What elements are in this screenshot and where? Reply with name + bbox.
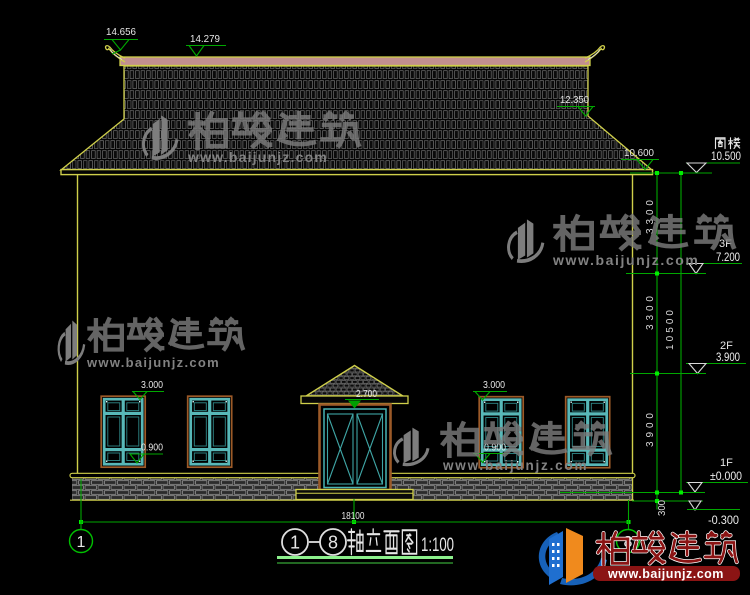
svg-text:3.900: 3.900 xyxy=(716,352,740,364)
svg-text:www.baijunjz.com: www.baijunjz.com xyxy=(187,149,328,165)
svg-text:1: 1 xyxy=(77,534,86,551)
svg-text:1:100: 1:100 xyxy=(421,535,454,556)
svg-text:300: 300 xyxy=(657,500,668,516)
svg-text:-0.300: -0.300 xyxy=(708,515,739,527)
svg-text:www.baijunjz.com: www.baijunjz.com xyxy=(442,458,588,473)
svg-text:7.200: 7.200 xyxy=(716,252,740,264)
svg-text:14.656: 14.656 xyxy=(106,26,136,38)
svg-text:10.500: 10.500 xyxy=(711,151,741,163)
svg-text:3.000: 3.000 xyxy=(483,379,505,391)
svg-text:0.900: 0.900 xyxy=(141,442,163,454)
svg-text:www.baijunjz.com: www.baijunjz.com xyxy=(552,252,699,268)
svg-text:3.000: 3.000 xyxy=(141,379,163,391)
svg-text:www.baijunjz.com: www.baijunjz.com xyxy=(607,567,724,581)
svg-text:2.700: 2.700 xyxy=(356,388,377,400)
svg-text:1: 1 xyxy=(290,533,300,553)
svg-text:2F: 2F xyxy=(720,340,733,352)
svg-text:14.279: 14.279 xyxy=(190,33,220,45)
svg-text:8: 8 xyxy=(328,533,338,553)
svg-text:10.600: 10.600 xyxy=(624,147,654,159)
svg-text:1F: 1F xyxy=(720,457,733,469)
svg-text:18100: 18100 xyxy=(342,510,365,522)
svg-text:www.baijunjz.com: www.baijunjz.com xyxy=(86,355,220,370)
svg-text:±0.000: ±0.000 xyxy=(710,471,742,483)
svg-text:12.350: 12.350 xyxy=(560,94,589,106)
